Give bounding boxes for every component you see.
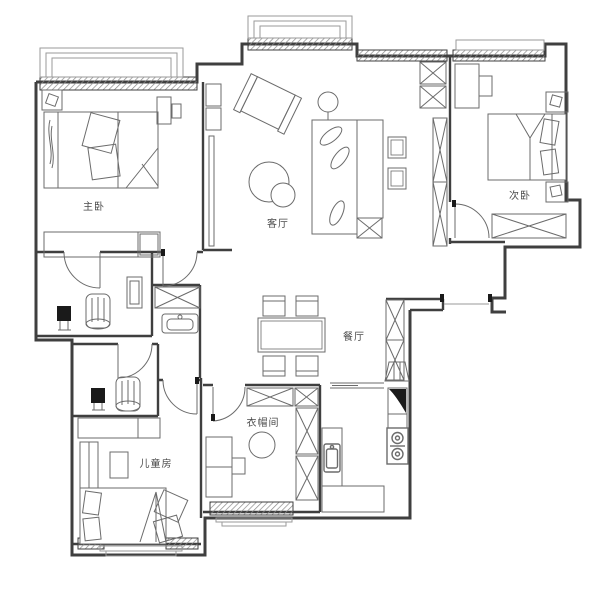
door-jamb-bedroom2	[452, 200, 456, 207]
water-heater	[86, 294, 110, 329]
door-master	[163, 252, 197, 286]
door-bathroom2	[118, 344, 152, 378]
kids-bed	[80, 488, 188, 544]
bedroom2-wardrobe	[492, 214, 566, 238]
bays-and-steps	[40, 16, 544, 556]
door-bedroom2	[455, 204, 489, 238]
dining-set	[258, 296, 325, 376]
door-jamb-cloak	[211, 414, 215, 421]
tv-wall-cabinets	[420, 62, 447, 246]
kitchen-corner-fan	[389, 389, 406, 413]
shower-panel	[127, 277, 142, 308]
master-wardrobe	[44, 232, 160, 257]
hallway-cabinets	[206, 84, 221, 246]
armchair	[234, 74, 302, 135]
stove	[387, 428, 408, 464]
door-kitchen-sliding	[330, 383, 384, 388]
cloakroom-furniture	[206, 388, 318, 500]
kitchen-sink	[324, 444, 340, 472]
plant	[318, 92, 338, 120]
window-living-bay	[248, 38, 352, 50]
coffee-table	[249, 162, 295, 207]
label-living-room: 客厅	[267, 217, 289, 230]
nightstand	[42, 90, 62, 110]
wall-master-right	[203, 82, 232, 250]
bedroom2-furniture	[455, 64, 568, 238]
cloak-stool	[249, 432, 275, 458]
kitchen-furniture	[322, 300, 409, 512]
bathroom1-lamp	[57, 306, 71, 321]
cloak-wardrobe-top	[247, 388, 318, 406]
toilet2	[116, 377, 140, 411]
floor-plan: 主卧 客厅 次卧 餐厅 儿童房 衣帽间	[0, 0, 600, 600]
kitchen-cabinet-cell	[388, 414, 407, 428]
dresser-stool	[172, 104, 181, 118]
kids-room-furniture	[78, 418, 188, 544]
toilet-base	[58, 321, 71, 330]
nightstand-lamp	[46, 94, 59, 107]
door-cloakroom	[213, 387, 245, 421]
dining-table	[258, 318, 325, 352]
room-labels: 主卧 客厅 次卧 餐厅 儿童房 衣帽间	[83, 189, 531, 470]
floor-plan-page: 主卧 客厅 次卧 餐厅 儿童房 衣帽间	[0, 0, 600, 600]
vanity-sink	[162, 314, 198, 333]
label-second-bedroom: 次卧	[509, 189, 531, 202]
window-master	[40, 77, 197, 90]
bedroom2-bed	[488, 114, 566, 180]
door-kids-room	[163, 380, 197, 414]
bay-living	[248, 16, 352, 38]
door-jamb-master	[161, 249, 165, 256]
vanity-cabinet	[155, 287, 200, 308]
label-dining-room: 餐厅	[343, 330, 365, 343]
label-cloakroom: 衣帽间	[247, 416, 280, 429]
label-kids-room: 儿童房	[140, 457, 173, 470]
door-jamb-kids	[195, 377, 199, 384]
side-tables	[388, 137, 406, 189]
bathroom2-lamp	[91, 388, 105, 403]
kids-desk	[110, 452, 128, 478]
wall-entry	[386, 299, 443, 310]
bay-master	[40, 48, 183, 77]
kitchen-counter-left	[322, 428, 342, 486]
bedroom2-desk	[455, 64, 492, 108]
laundry-base	[92, 403, 105, 410]
hall-vanity	[155, 287, 200, 333]
window-bedroom2	[453, 50, 545, 61]
window-cloakroom	[210, 502, 293, 515]
master-bed	[44, 112, 158, 188]
kids-dresser-row	[78, 418, 160, 438]
kitchen-counter-bottom	[322, 486, 384, 512]
dresser	[157, 97, 171, 124]
cloak-wardrobe-right	[296, 408, 318, 500]
cloak-dresser	[206, 437, 245, 497]
furniture	[42, 62, 568, 544]
wall-bath2	[72, 344, 158, 416]
door-jamb-entry-right	[488, 294, 492, 302]
wall-cloakroom	[203, 385, 320, 512]
hallway-partition	[209, 136, 214, 246]
dining-chairs	[263, 296, 318, 376]
living-room-furniture	[234, 62, 447, 246]
bay-bedroom2	[456, 40, 544, 50]
master-bedroom-furniture	[42, 90, 181, 257]
kids-cabinet	[80, 442, 98, 490]
pantry-column	[386, 300, 404, 380]
door-jamb-entry-left	[440, 294, 444, 302]
label-master-bedroom: 主卧	[83, 200, 105, 213]
sofa	[312, 120, 383, 238]
window-hall-top	[357, 50, 447, 61]
